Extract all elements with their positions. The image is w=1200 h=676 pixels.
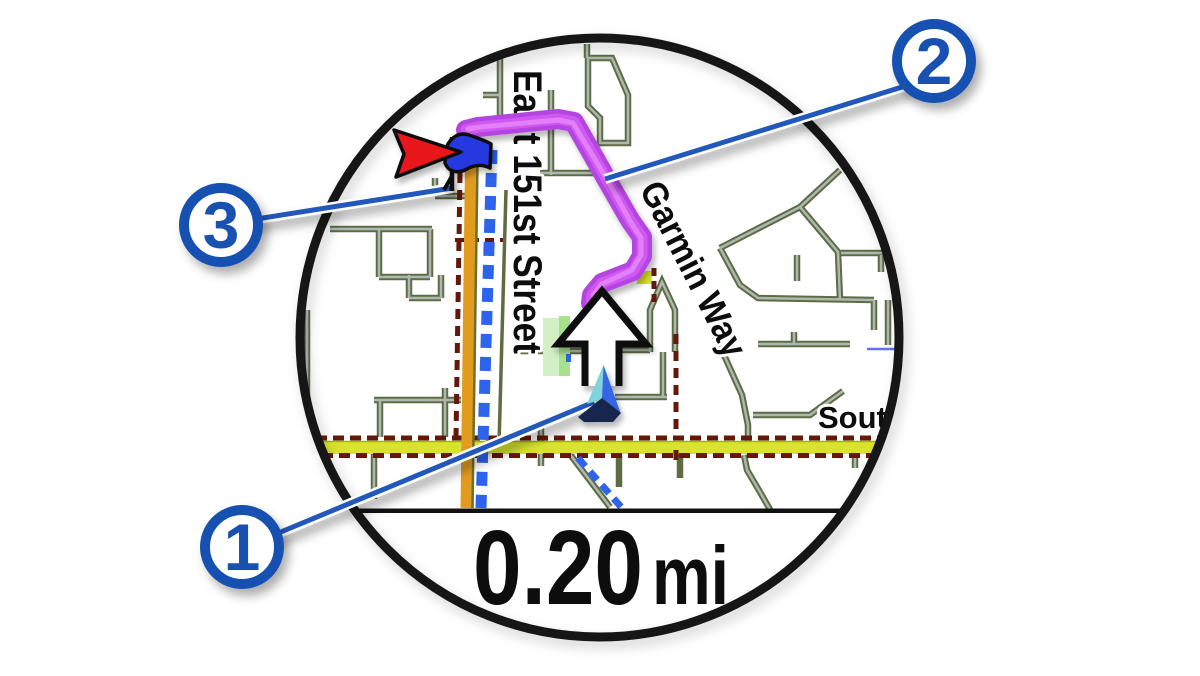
svg-text:1: 1 bbox=[224, 510, 261, 584]
svg-text:3: 3 bbox=[203, 188, 240, 262]
svg-text:2: 2 bbox=[916, 24, 953, 98]
svg-text:0.20: 0.20 bbox=[473, 509, 643, 627]
